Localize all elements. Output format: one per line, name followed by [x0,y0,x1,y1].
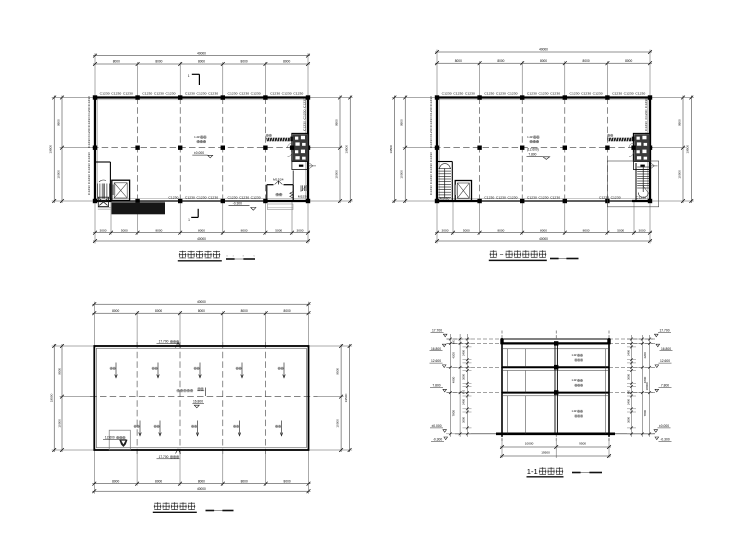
svg-text:8000: 8000 [540,229,547,233]
svg-text:C1230: C1230 [429,96,433,106]
svg-text:40000: 40000 [197,237,206,241]
svg-text:C1230: C1230 [570,92,580,96]
svg-text:9500: 9500 [336,368,340,375]
svg-text:C1230: C1230 [166,92,176,96]
svg-text:C1230: C1230 [87,117,91,127]
svg-text:900: 900 [453,339,456,344]
svg-text:5000: 5000 [275,229,282,233]
svg-text:(12.600): (12.600) [527,148,539,152]
svg-text:8000: 8000 [113,60,120,64]
svg-text:9500: 9500 [58,368,62,375]
svg-text:C1230: C1230 [154,92,164,96]
svg-text:C1230: C1230 [168,196,178,200]
svg-text:10000: 10000 [334,170,338,179]
svg-text:16.800: 16.800 [661,347,671,351]
svg-text:C1230: C1230 [251,92,261,96]
svg-text:9500: 9500 [579,441,586,445]
svg-text:1.2#: 1.2# [571,378,577,382]
svg-text:8000: 8000 [155,60,162,64]
svg-text:C1230: C1230 [429,127,433,137]
svg-text:C1230: C1230 [87,127,91,137]
svg-text:1: 1 [188,74,190,78]
svg-text:19500: 19500 [389,145,393,154]
svg-text:1: 1 [188,218,190,222]
svg-text:C1230: C1230 [550,196,560,200]
svg-text:19500: 19500 [541,451,550,455]
svg-text:M1650: M1650 [440,196,450,200]
svg-text:3000: 3000 [627,374,631,380]
svg-text:C1230: C1230 [87,163,91,173]
svg-text:1.2#: 1.2# [194,135,200,139]
svg-text:9500: 9500 [677,119,681,126]
svg-text:C1230: C1230 [87,185,91,195]
svg-text:C1230: C1230 [228,196,238,200]
svg-text:C1230: C1230 [87,174,91,184]
svg-text:8000: 8000 [583,59,590,63]
svg-text:C1230: C1230 [453,92,463,96]
svg-text:8000: 8000 [497,229,504,233]
svg-text:C1230: C1230 [465,92,475,96]
svg-text:C1230: C1230 [599,196,609,200]
svg-text:8000: 8000 [455,59,462,63]
svg-text:5000: 5000 [617,229,624,233]
svg-text:18000: 18000 [645,382,649,390]
svg-text:3000: 3000 [100,229,107,233]
svg-text:9500: 9500 [400,119,404,126]
svg-text:8000: 8000 [198,479,205,483]
svg-text:7800: 7800 [452,410,456,417]
svg-text:5000: 5000 [463,229,470,233]
svg-text:12.600: 12.600 [105,435,115,439]
svg-text:8000: 8000 [284,309,291,313]
svg-text:4200: 4200 [452,352,456,359]
svg-text:C1230: C1230 [581,92,591,96]
svg-text:C1230: C1230 [550,92,560,96]
svg-text:8000: 8000 [283,60,290,64]
svg-text:C1230: C1230 [508,196,518,200]
svg-text:C1230: C1230 [239,92,249,96]
svg-text:C1230: C1230 [302,109,306,119]
svg-text:C1230: C1230 [251,196,261,200]
svg-text:-0.300: -0.300 [660,438,670,442]
svg-text:M1530: M1530 [298,195,309,199]
svg-text:C1230: C1230 [644,109,648,119]
svg-text:9500: 9500 [334,119,338,126]
svg-text:C1230: C1230 [197,92,207,96]
svg-text:8000: 8000 [625,59,632,63]
svg-text:C1230: C1230 [508,92,518,96]
svg-text:C1230: C1230 [429,117,433,127]
svg-text:8000: 8000 [241,309,248,313]
svg-text:C1230: C1230 [302,98,306,108]
svg-text:12.600: 12.600 [431,359,441,363]
svg-text:C1230: C1230 [429,138,433,148]
svg-text:10000: 10000 [336,419,340,428]
svg-text:8000: 8000 [155,309,162,313]
svg-text:8000: 8000 [583,229,590,233]
svg-text:8000: 8000 [284,479,291,483]
svg-text:1.2#: 1.2# [571,409,577,413]
svg-text:12.600: 12.600 [660,359,670,363]
svg-text:40000: 40000 [539,48,548,52]
svg-text:±0.000: ±0.000 [659,424,669,428]
svg-text:8000: 8000 [241,229,248,233]
svg-text:C1230: C1230 [87,96,91,106]
svg-text:1-1: 1-1 [527,467,538,476]
svg-text:8000: 8000 [112,479,119,483]
svg-text:C1230: C1230 [123,92,133,96]
svg-text:7.800: 7.800 [432,384,440,388]
svg-text:C1230: C1230 [496,92,506,96]
svg-text:C1230: C1230 [635,92,645,96]
svg-text:1.2#: 1.2# [571,353,577,357]
svg-text:C1230: C1230 [484,92,494,96]
svg-text:C1230: C1230 [228,92,238,96]
svg-text:C1230: C1230 [208,196,218,200]
svg-text:±0.000: ±0.000 [431,424,441,428]
svg-text:C1230: C1230 [527,92,537,96]
svg-text:3000: 3000 [639,229,646,233]
svg-text:8000: 8000 [241,60,248,64]
svg-text:C1230: C1230 [539,196,549,200]
svg-text:5000: 5000 [121,229,128,233]
svg-text:9500: 9500 [56,119,60,126]
svg-text:C1230: C1230 [429,163,433,173]
svg-text:C1230: C1230 [282,92,292,96]
svg-text:8000: 8000 [241,479,248,483]
svg-text:C1230: C1230 [302,121,306,131]
svg-text:4800: 4800 [643,376,647,383]
svg-text:C1230: C1230 [527,196,537,200]
svg-text:2400: 2400 [627,399,631,405]
svg-text:C1230: C1230 [496,196,506,200]
svg-text:C1230: C1230 [100,92,110,96]
svg-text:600: 600 [628,389,631,394]
svg-text:3000: 3000 [442,229,449,233]
svg-text:7.800: 7.800 [661,384,669,388]
svg-text:8000: 8000 [497,59,504,63]
svg-text:C1230: C1230 [484,196,494,200]
svg-text:C1230: C1230 [644,121,648,131]
svg-text:19500: 19500 [49,145,53,154]
svg-text:C1230: C1230 [612,92,622,96]
svg-text:17.700: 17.700 [159,455,169,459]
svg-text:40000: 40000 [197,51,206,55]
svg-text:10000: 10000 [58,419,62,428]
svg-text:C1230: C1230 [208,92,218,96]
svg-text:3000: 3000 [461,374,465,380]
svg-text:C1230: C1230 [539,92,549,96]
svg-text:M1524: M1524 [273,177,284,181]
svg-text:19500: 19500 [50,393,54,402]
svg-text:C1230: C1230 [636,196,646,200]
svg-text:C1230: C1230 [429,152,433,162]
svg-text:2400: 2400 [627,350,631,356]
svg-text:C1230: C1230 [293,92,303,96]
svg-text:C1230: C1230 [429,106,433,116]
svg-text:40000: 40000 [197,300,206,304]
svg-text:C1230: C1230 [239,196,249,200]
svg-text:C1230: C1230 [624,92,634,96]
svg-text:40000: 40000 [539,237,548,241]
svg-text:8000: 8000 [198,60,205,64]
svg-text:8000: 8000 [112,309,119,313]
svg-text:~: ~ [500,252,504,259]
svg-text:17.700: 17.700 [159,340,169,344]
svg-text:C1230: C1230 [87,152,91,162]
svg-text:10000: 10000 [525,441,534,445]
svg-text:3000: 3000 [461,417,465,423]
svg-text:8000: 8000 [540,59,547,63]
svg-text:C1230: C1230 [185,92,195,96]
svg-text:C1230: C1230 [611,196,621,200]
svg-text:C1230: C1230 [87,138,91,148]
svg-text:7800: 7800 [643,410,647,417]
svg-text:3000: 3000 [627,417,631,423]
svg-text:7.800: 7.800 [528,152,536,156]
svg-text:40000: 40000 [197,487,206,491]
svg-text:10000: 10000 [56,170,60,179]
svg-text:C1230: C1230 [442,92,452,96]
svg-text:2400: 2400 [461,350,465,356]
svg-text:-0.300: -0.300 [233,201,243,205]
svg-text:10000: 10000 [677,170,681,179]
svg-text:17.700: 17.700 [659,329,669,333]
svg-text:4800: 4800 [452,376,456,383]
svg-text:600: 600 [462,389,465,394]
svg-text:1.2#: 1.2# [527,135,533,139]
svg-text:C1230: C1230 [429,185,433,195]
svg-text:10000: 10000 [400,170,404,179]
svg-text:19500: 19500 [344,393,348,402]
svg-text:±0.000: ±0.000 [194,151,204,155]
svg-text:3000: 3000 [297,229,304,233]
svg-text:C1230: C1230 [185,196,195,200]
svg-text:4200: 4200 [643,352,647,359]
svg-text:19500: 19500 [345,145,349,154]
svg-text:2400: 2400 [461,399,465,405]
svg-text:C1230: C1230 [429,174,433,184]
svg-text:8000: 8000 [198,309,205,313]
svg-text:-0.300: -0.300 [433,438,443,442]
svg-text:C1230: C1230 [87,106,91,116]
svg-text:16.800: 16.800 [431,347,441,351]
svg-text:19500: 19500 [686,145,690,154]
svg-text:C1230: C1230 [644,98,648,108]
svg-text:16.800: 16.800 [193,400,203,404]
svg-text:C1230: C1230 [270,92,280,96]
svg-text:C1230: C1230 [111,92,121,96]
svg-text:8000: 8000 [198,229,205,233]
svg-text:8000: 8000 [155,229,162,233]
svg-text:C1230: C1230 [197,196,207,200]
svg-text:8000: 8000 [155,479,162,483]
svg-text:C1230: C1230 [142,92,152,96]
svg-text:17.700: 17.700 [432,329,442,333]
svg-text:C1230: C1230 [593,92,603,96]
